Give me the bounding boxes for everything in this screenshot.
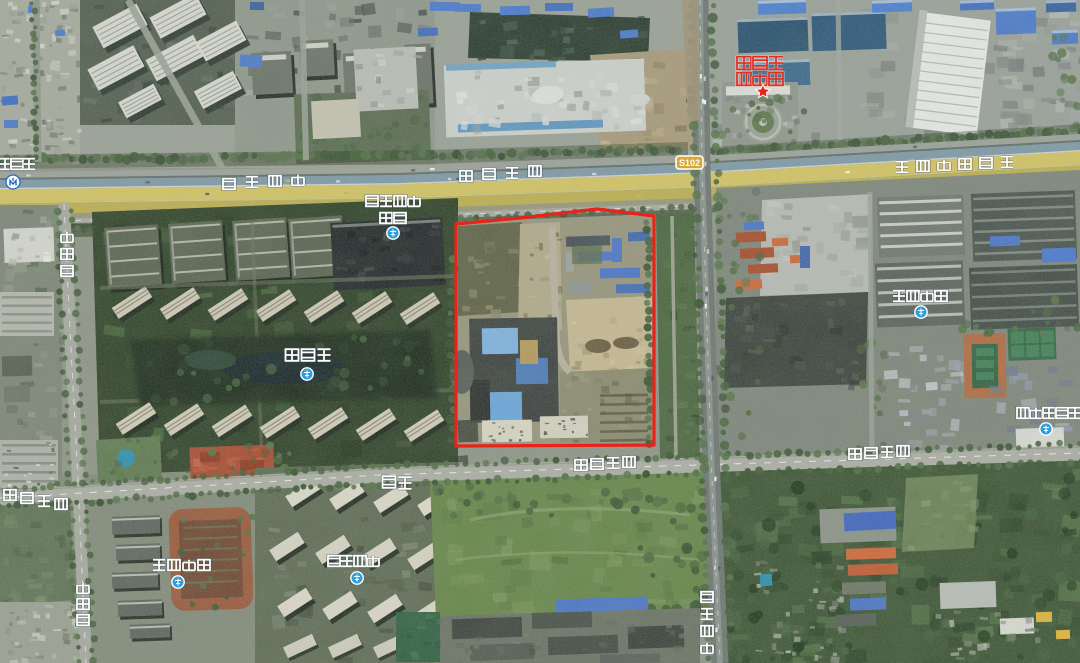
- svg-text:S102: S102: [679, 158, 700, 168]
